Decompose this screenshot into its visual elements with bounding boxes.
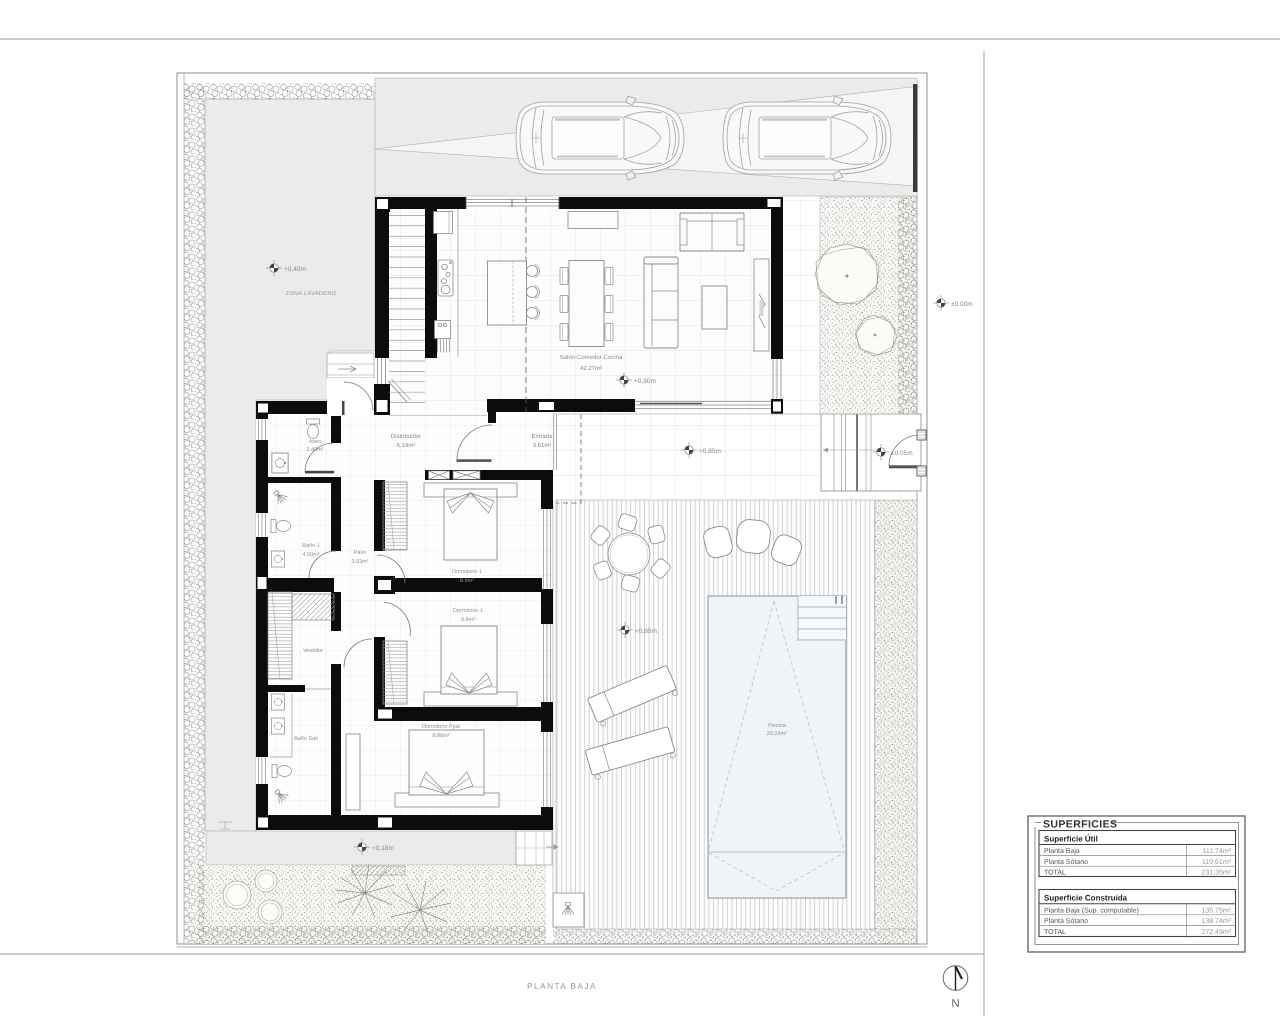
- svg-text:20.24m²: 20.24m²: [767, 731, 787, 737]
- svg-text:+0,18m: +0,18m: [372, 845, 394, 852]
- svg-text:3.61m²: 3.61m²: [533, 442, 552, 449]
- svg-text:Entrada: Entrada: [531, 433, 553, 440]
- svg-text:Superficie Útil: Superficie Útil: [1044, 834, 1098, 844]
- svg-text:272.49m²: 272.49m²: [1201, 929, 1231, 936]
- svg-text:42.27m²: 42.27m²: [580, 365, 602, 372]
- svg-text:Piscina: Piscina: [768, 723, 787, 729]
- svg-text:6.14m²: 6.14m²: [397, 442, 416, 449]
- svg-text:TOTAL: TOTAL: [1044, 869, 1066, 876]
- svg-text:Salón-Comedor-Cocina: Salón-Comedor-Cocina: [560, 354, 623, 361]
- svg-text:+0,40m: +0,40m: [284, 266, 306, 273]
- svg-text:Planta Sótano: Planta Sótano: [1044, 917, 1088, 925]
- svg-text:4.50m²: 4.50m²: [302, 552, 319, 558]
- svg-text:8.86m²: 8.86m²: [432, 733, 449, 739]
- svg-text:±0.00m: ±0.00m: [951, 301, 973, 308]
- svg-text:8.9m²: 8.9m²: [461, 617, 475, 623]
- svg-text:119.61m²: 119.61m²: [1202, 859, 1232, 866]
- svg-text:2.48m²: 2.48m²: [306, 447, 323, 453]
- svg-text:+0,85m: +0,85m: [635, 628, 657, 635]
- svg-text:Aseo: Aseo: [309, 439, 322, 445]
- svg-text:Dormitorio 1: Dormitorio 1: [452, 569, 482, 575]
- svg-text:138.74m²: 138.74m²: [1201, 918, 1231, 925]
- svg-text:Dormitorio 1: Dormitorio 1: [453, 608, 483, 614]
- svg-text:135.75m²: 135.75m²: [1201, 907, 1231, 914]
- svg-text:8.9m²: 8.9m²: [460, 578, 474, 584]
- svg-text:Planta Baja (Sup. computable): Planta Baja (Sup. computable): [1044, 906, 1139, 914]
- svg-text:Vestidor: Vestidor: [303, 648, 323, 654]
- svg-text:SUPERFICIES: SUPERFICIES: [1043, 819, 1117, 831]
- svg-text:Planta Baja: Planta Baja: [1044, 847, 1080, 855]
- svg-text:±0.05m: ±0.05m: [891, 450, 913, 457]
- svg-text:Baño 1: Baño 1: [302, 543, 319, 549]
- svg-text:N: N: [951, 998, 959, 1010]
- svg-text:3.93m²: 3.93m²: [351, 559, 368, 565]
- svg-text:231.35m²: 231.35m²: [1201, 869, 1231, 876]
- svg-text:TOTAL: TOTAL: [1044, 929, 1066, 936]
- svg-text:+0,90m: +0,90m: [634, 378, 656, 385]
- svg-text:Superficie Construida: Superficie Construida: [1044, 894, 1128, 903]
- svg-text:PLANTA BAJA: PLANTA BAJA: [527, 981, 597, 991]
- svg-text:+0,85m: +0,85m: [699, 448, 721, 455]
- svg-text:Planta Sótano: Planta Sótano: [1044, 858, 1088, 866]
- svg-text:Baño Suit: Baño Suit: [294, 736, 318, 742]
- svg-text:ZONA LAVADERO: ZONA LAVADERO: [286, 291, 337, 297]
- svg-text:Distribuidor: Distribuidor: [391, 433, 421, 440]
- svg-text:Dormitorio Ppal: Dormitorio Ppal: [422, 724, 460, 730]
- svg-text:Paso: Paso: [354, 550, 367, 556]
- svg-text:111.74m²: 111.74m²: [1202, 848, 1231, 855]
